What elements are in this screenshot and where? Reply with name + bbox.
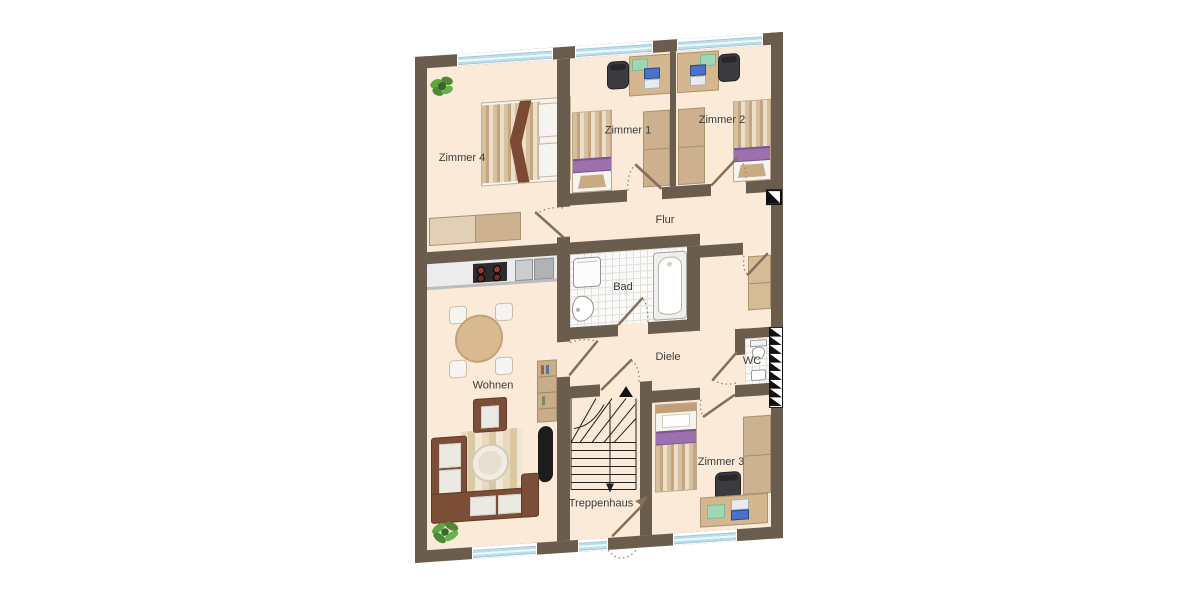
doors-overlay	[415, 32, 783, 563]
room-label-treppenhaus: Treppenhaus	[569, 497, 633, 509]
room-label-wc: WC	[743, 355, 761, 367]
entrance-door-arrow	[635, 496, 648, 506]
room-label-zimmer4: Zimmer 4	[439, 152, 485, 164]
floor-plan: Zimmer 4 Zimmer 1 Zimmer 2 Flur Bad Diel…	[415, 32, 783, 563]
room-label-zimmer1: Zimmer 1	[605, 125, 651, 137]
room-label-zimmer2: Zimmer 2	[699, 114, 745, 126]
room-label-zimmer3: Zimmer 3	[698, 456, 744, 468]
room-label-diele: Diele	[655, 351, 680, 363]
room-label-flur: Flur	[656, 214, 675, 226]
room-label-wohnen: Wohnen	[473, 380, 514, 392]
door-leaves	[536, 156, 767, 541]
room-label-bad: Bad	[613, 281, 633, 293]
